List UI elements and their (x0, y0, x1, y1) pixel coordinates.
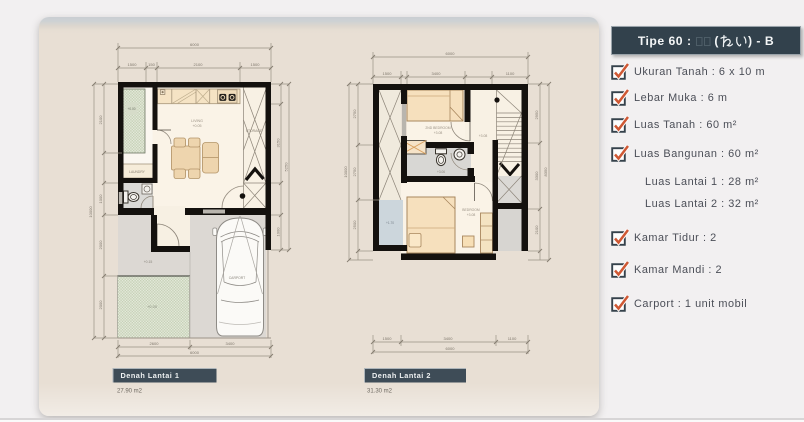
svg-text:6000: 6000 (190, 350, 200, 355)
svg-text:LIVING: LIVING (191, 119, 203, 123)
svg-text:2100: 2100 (194, 62, 204, 67)
svg-text:1500: 1500 (383, 336, 393, 341)
svg-text:Denah Lantai 1: Denah Lantai 1 (121, 371, 180, 380)
svg-text:2100: 2100 (534, 225, 539, 235)
svg-text:2000: 2000 (98, 300, 103, 310)
svg-text:10000: 10000 (343, 166, 348, 178)
svg-text:2100: 2100 (98, 115, 103, 125)
svg-text:BEDROOM: BEDROOM (462, 208, 480, 212)
svg-text:+3.06: +3.06 (437, 170, 445, 174)
svg-text:1000: 1000 (98, 194, 103, 204)
svg-text:1500: 1500 (128, 62, 138, 67)
svg-text:27.90 m2: 27.90 m2 (117, 389, 143, 395)
svg-text:+0.00: +0.00 (127, 107, 135, 111)
svg-text:LAUNDRY: LAUNDRY (129, 170, 145, 174)
svg-text:Denah Lantai 2: Denah Lantai 2 (372, 371, 431, 380)
svg-text:STORAGE: STORAGE (246, 129, 263, 133)
svg-text:31.30 m2: 31.30 m2 (367, 389, 393, 395)
svg-text:2500: 2500 (352, 220, 357, 230)
svg-text:5250: 5250 (284, 162, 289, 172)
svg-text:+0.05: +0.05 (192, 124, 201, 128)
svg-text:2000: 2000 (98, 240, 103, 250)
svg-text:3150: 3150 (276, 138, 281, 148)
svg-text:1000: 1000 (276, 227, 281, 237)
svg-text:1100: 1100 (506, 71, 515, 76)
svg-text:1100: 1100 (508, 336, 517, 341)
svg-text:2ND BEDROOM: 2ND BEDROOM (425, 126, 450, 130)
svg-text:3400: 3400 (444, 336, 454, 341)
svg-text:6000: 6000 (446, 51, 456, 56)
svg-text:3400: 3400 (226, 341, 236, 346)
svg-text:10000: 10000 (88, 206, 93, 218)
svg-text:2750: 2750 (352, 167, 357, 177)
svg-text:3400: 3400 (432, 71, 442, 76)
svg-text:+3.08: +3.08 (434, 131, 443, 135)
svg-text:+0.00: +0.00 (147, 304, 158, 309)
svg-text:+0.15: +0.15 (144, 260, 153, 264)
svg-text:8350: 8350 (543, 167, 548, 177)
svg-text:+1.70: +1.70 (386, 221, 394, 225)
svg-text:1500: 1500 (251, 62, 261, 67)
svg-text:2750: 2750 (352, 109, 357, 119)
svg-text:1500: 1500 (383, 71, 393, 76)
svg-text:+3.08: +3.08 (467, 213, 476, 217)
svg-text:2950: 2950 (534, 110, 539, 120)
svg-text:2600: 2600 (150, 341, 160, 346)
svg-text:6000: 6000 (446, 346, 456, 351)
svg-text:CARPORT: CARPORT (229, 276, 246, 280)
svg-text:3300: 3300 (534, 171, 539, 181)
svg-text:150: 150 (148, 62, 155, 67)
svg-text:+3.08: +3.08 (479, 134, 488, 138)
svg-text:6000: 6000 (190, 42, 200, 47)
